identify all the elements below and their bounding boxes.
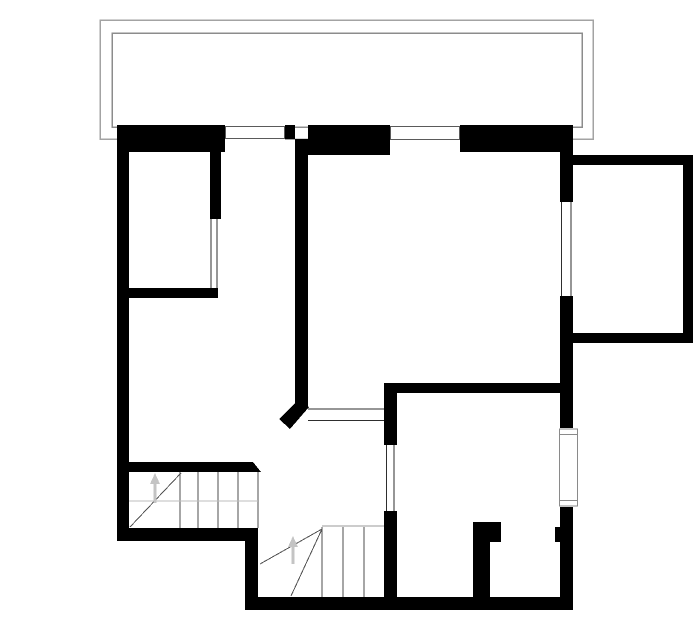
front-wall-center [308, 125, 390, 155]
right-wall-door-jamb [555, 527, 573, 542]
balcony-outer-outline [100, 20, 593, 139]
front-window-2 [391, 127, 460, 140]
front-window-1 [226, 127, 285, 139]
floor-plan-svg [0, 0, 700, 644]
left-exterior-wall [117, 125, 129, 541]
balcony-inner-outline [112, 33, 582, 127]
stair-top-wall-bevel [247, 462, 261, 472]
lower-right-room-left-wall-upper [384, 383, 397, 445]
wc-partition-wall [473, 522, 490, 610]
front-wall-mullion [285, 125, 295, 139]
right-exterior-wall-lower [560, 507, 573, 610]
wc-partition-jamb [490, 522, 501, 542]
central-partition-wall [295, 139, 308, 408]
lower-stair-winder-line [291, 529, 322, 596]
stair-bottom-wall [117, 528, 258, 541]
annex-right-wall [683, 155, 693, 343]
floor-plan [0, 0, 700, 644]
stair-top-wall [129, 462, 247, 472]
right-exterior-wall-middle [560, 296, 573, 428]
lower-stair-direction-arrow-head [288, 536, 298, 547]
lower-right-room-top-wall [384, 383, 573, 393]
lower-right-room-left-wall-lower [384, 511, 397, 610]
upper-stair-direction-arrow-head [150, 473, 160, 484]
upper-left-room-bottom-wall [129, 288, 218, 298]
annex-bottom-wall [560, 333, 693, 343]
bottom-exterior-wall [245, 597, 573, 610]
annex-top-wall [560, 155, 693, 165]
upper-left-room-divider-wall [210, 139, 221, 219]
front-wall-left [117, 125, 225, 152]
side-window [560, 429, 578, 506]
central-wall-end-bevel [279, 402, 309, 429]
front-wall-right [460, 125, 573, 152]
